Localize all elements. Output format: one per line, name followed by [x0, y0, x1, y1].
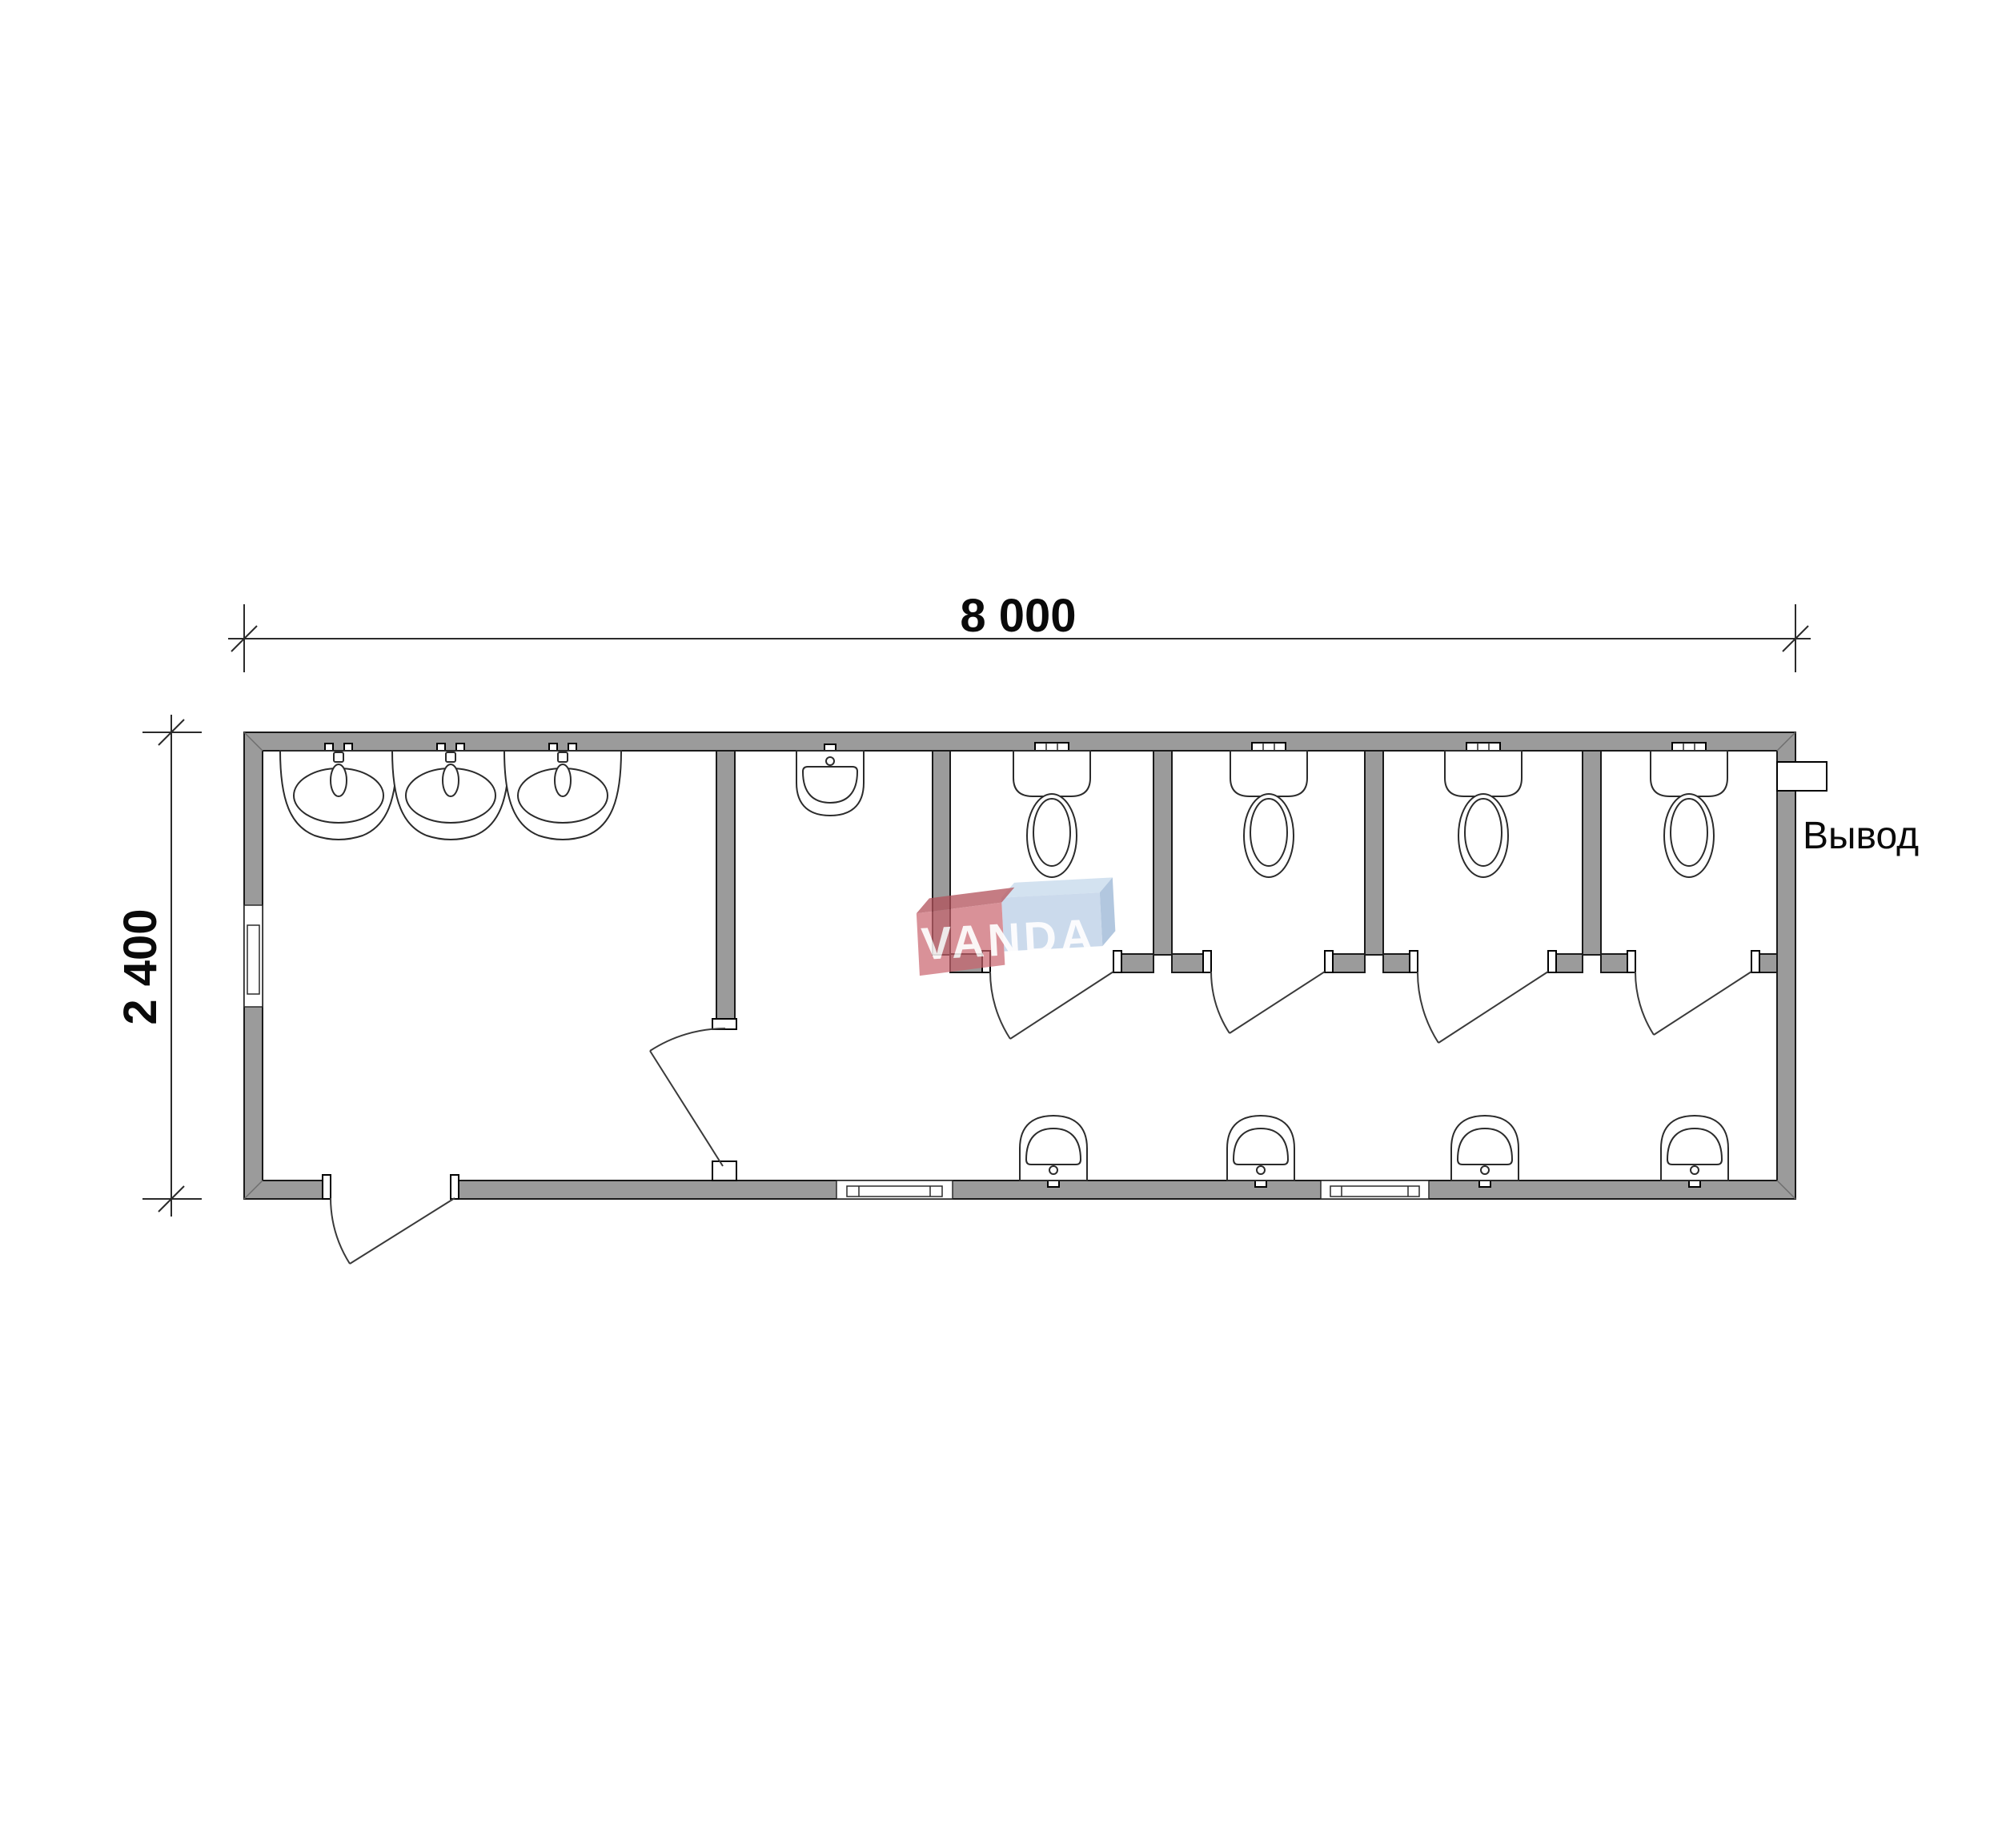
door-jamb [1627, 951, 1635, 972]
stall-front-wall [1333, 954, 1365, 972]
window-bottom-wall-1 [836, 1181, 953, 1199]
door-jamb [1325, 951, 1333, 972]
washroom-partition [716, 751, 735, 1019]
entrance-opening [331, 1179, 451, 1201]
stall-partition-2 [1153, 751, 1172, 955]
door-jamb [1203, 951, 1211, 972]
outlet-box [1777, 762, 1827, 791]
door-jamb [1410, 951, 1418, 972]
stall-partition-4 [1583, 751, 1601, 955]
door-jamb [1548, 951, 1556, 972]
watermark-text: VANDA [920, 910, 1097, 970]
urinal [1227, 1116, 1294, 1187]
door-jamb [451, 1175, 459, 1199]
window-bottom-wall-2 [1321, 1181, 1429, 1199]
urinal [1020, 1116, 1087, 1187]
urinal [1451, 1116, 1519, 1187]
stall-front-wall [1601, 954, 1627, 972]
door-jamb [323, 1175, 331, 1199]
floor-plan-canvas: VANDA Вывод 8 000 2 400 [0, 0, 2014, 1848]
urinal [1661, 1116, 1728, 1187]
urinal [796, 744, 864, 816]
stall-front-wall [1556, 954, 1583, 972]
dimension-width-label: 8 000 [960, 590, 1076, 642]
stall-front-wall [1759, 954, 1777, 972]
outlet-label: Вывод [1803, 815, 1919, 857]
dimension-left: 2 400 [114, 715, 202, 1217]
door-jamb [1751, 951, 1759, 972]
dimension-top: 8 000 [228, 590, 1811, 672]
entrance-door [331, 1198, 455, 1264]
stall-partition-3 [1365, 751, 1383, 955]
page: VANDA Вывод 8 000 2 400 [0, 0, 2014, 1848]
utility-outlet: Вывод [1777, 762, 1919, 857]
door-jamb [712, 1161, 736, 1181]
window-left-wall [244, 905, 263, 1007]
stall-front-wall [1121, 954, 1153, 972]
dimension-height-label: 2 400 [114, 908, 166, 1024]
door-jamb [1113, 951, 1121, 972]
stall-front-wall [1383, 954, 1410, 972]
stall-front-wall [1172, 954, 1203, 972]
